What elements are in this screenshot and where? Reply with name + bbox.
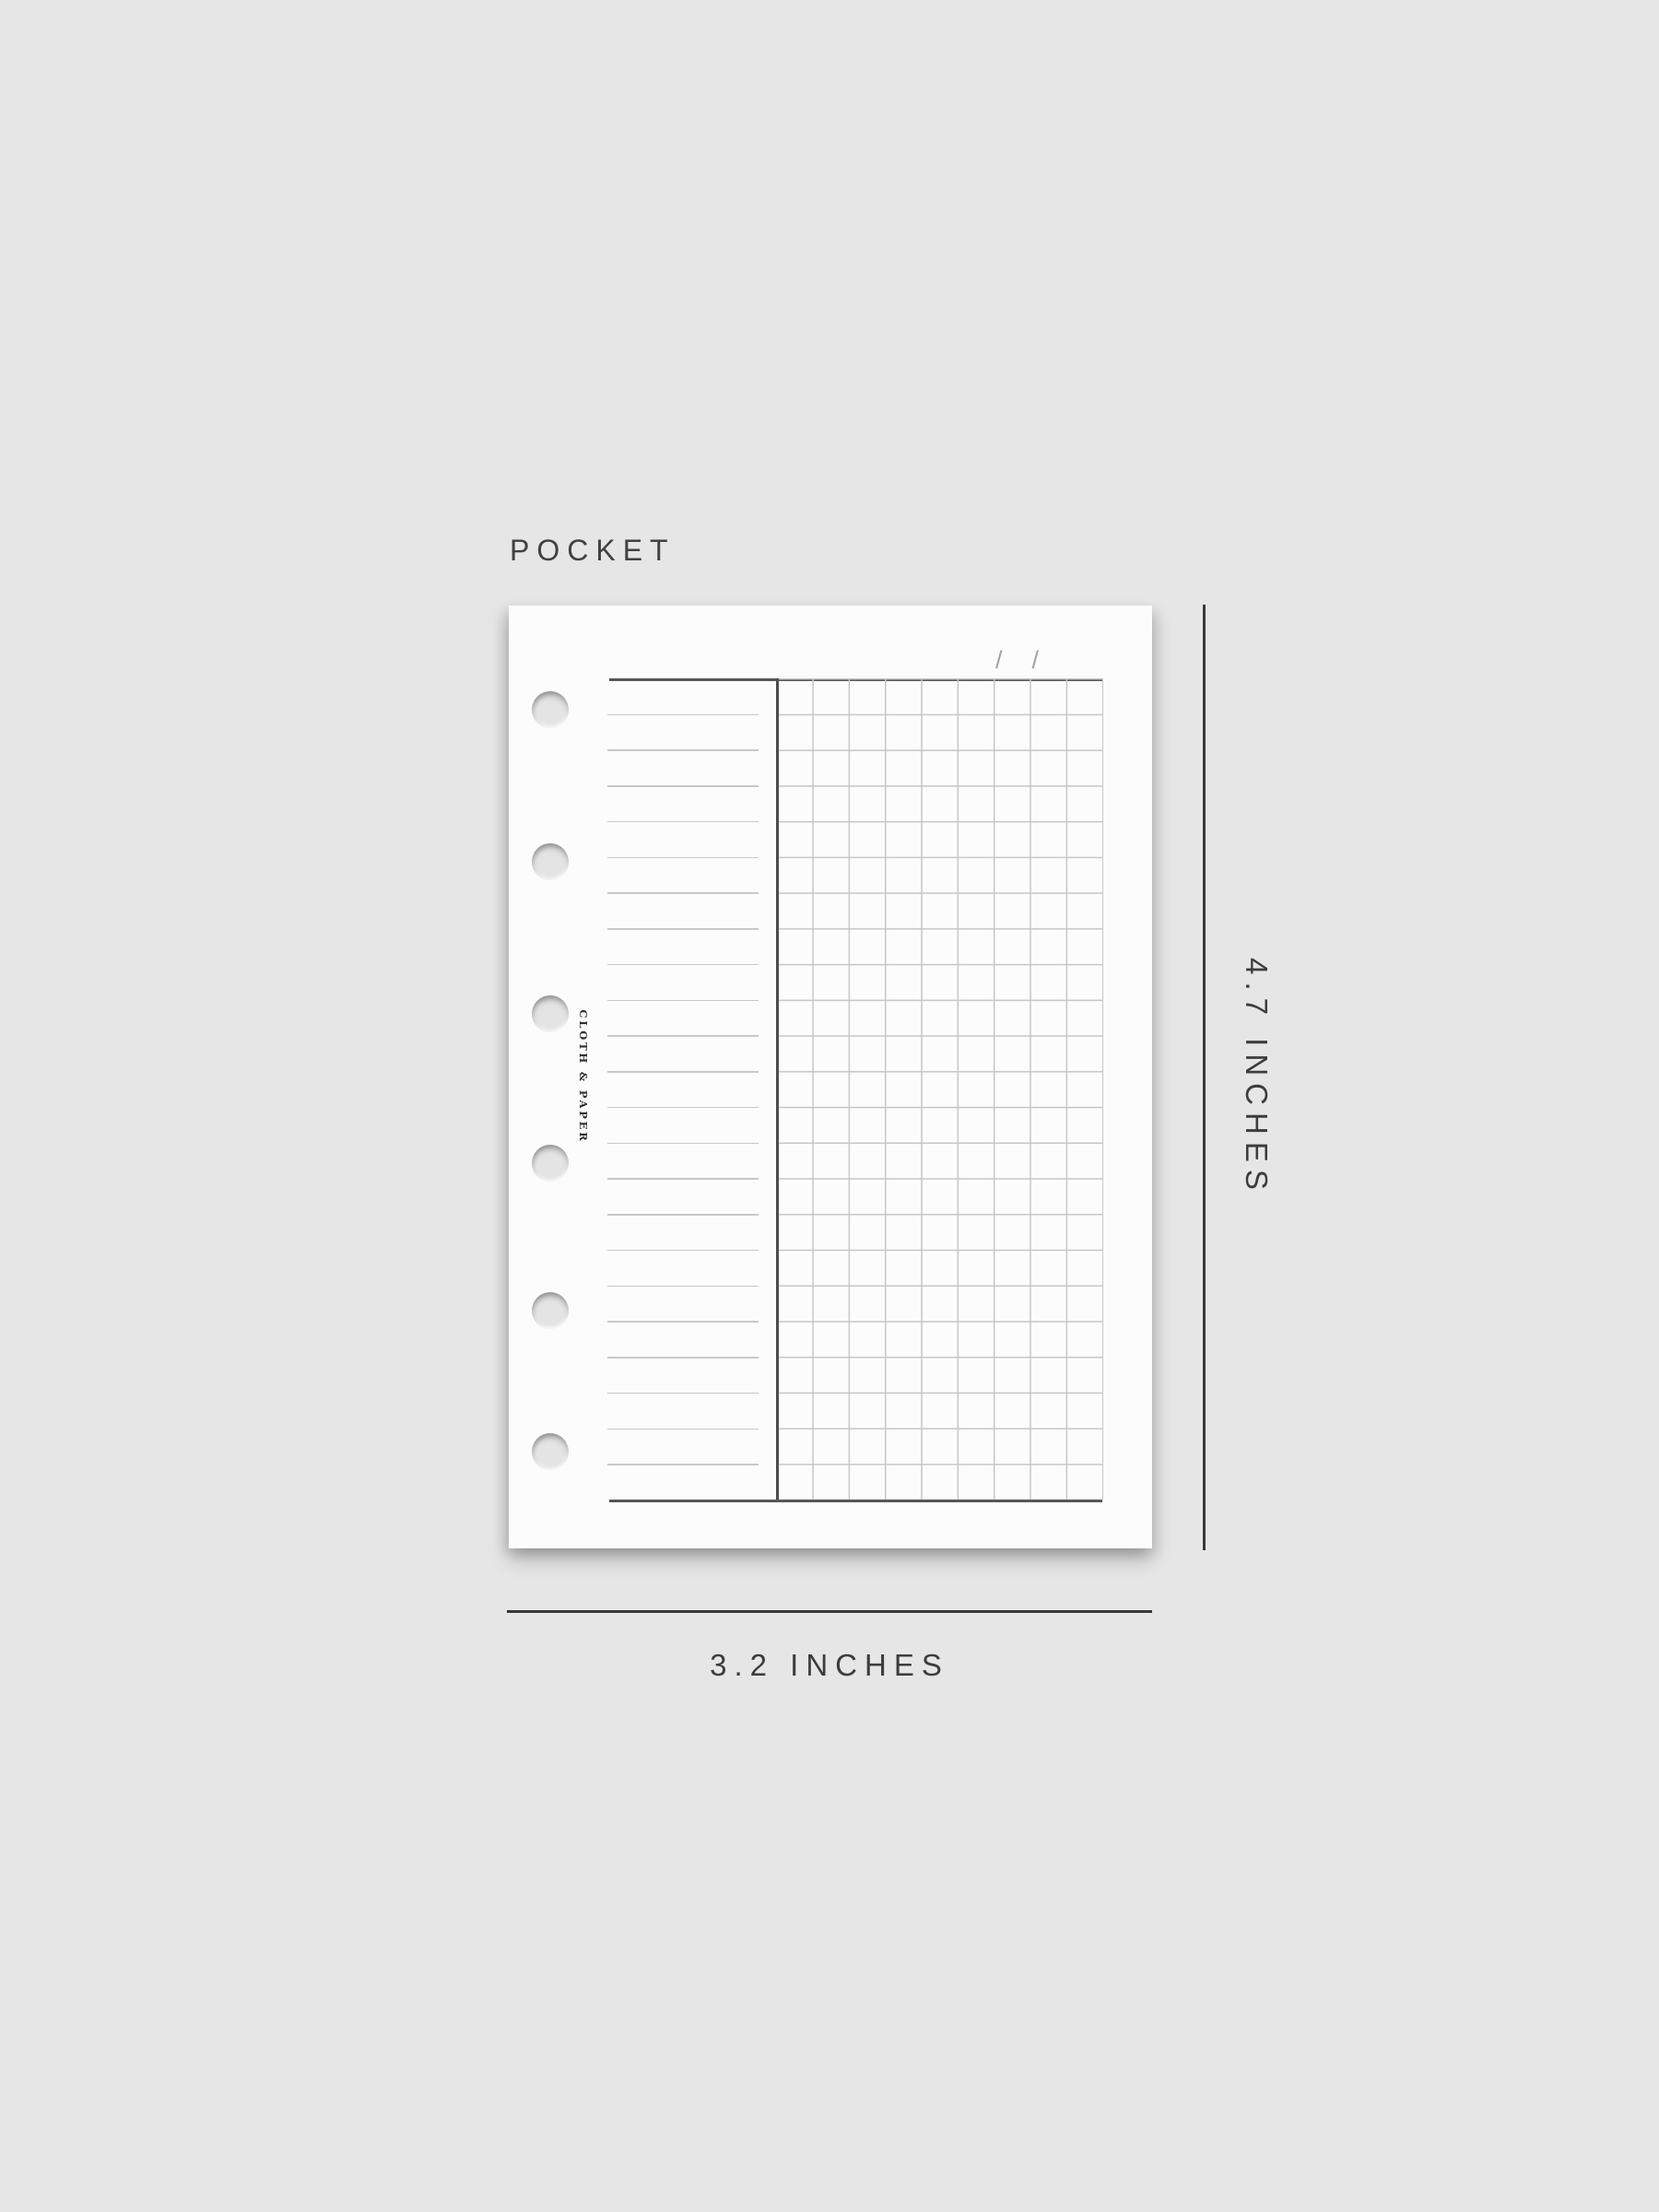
- ruled-line: [607, 749, 759, 751]
- punch-hole: [532, 691, 569, 728]
- ruled-line: [607, 964, 759, 966]
- ruled-line: [607, 1035, 759, 1037]
- bottom-rule: [609, 1500, 1102, 1502]
- ruled-line: [607, 1357, 759, 1359]
- width-dimension-line: [507, 1610, 1152, 1613]
- punch-hole: [532, 1145, 569, 1182]
- section-divider: [776, 678, 779, 1502]
- ruled-line: [607, 785, 759, 787]
- ruled-line: [607, 1286, 759, 1288]
- date-field-slashes: / /: [995, 646, 1039, 675]
- ruled-line: [607, 1071, 759, 1073]
- ruled-line: [607, 1143, 759, 1145]
- ruled-line: [607, 1178, 759, 1180]
- ruled-line: [607, 1429, 759, 1430]
- date-slash: /: [1032, 646, 1040, 675]
- ruled-line: [607, 1321, 759, 1323]
- ruled-line: [607, 1464, 759, 1465]
- ruled-line: [607, 1250, 759, 1252]
- ruled-line: [607, 1214, 759, 1216]
- size-label: POCKET: [510, 534, 676, 568]
- ruled-line: [607, 857, 759, 859]
- ruled-line: [607, 928, 759, 930]
- ruled-line: [607, 821, 759, 823]
- date-slash: /: [995, 646, 1003, 675]
- height-dimension-line: [1203, 605, 1206, 1550]
- punch-hole: [532, 1433, 569, 1470]
- ruled-line: [607, 1393, 759, 1394]
- ruled-line: [607, 1107, 759, 1109]
- ruled-line: [607, 892, 759, 894]
- brand-wordmark: CLOTH & PAPER: [577, 1009, 590, 1143]
- punch-hole: [532, 843, 569, 880]
- width-dimension-label: 3.2 INCHES: [710, 1648, 949, 1683]
- punch-hole: [532, 1292, 569, 1329]
- height-dimension-label: 4.7 INCHES: [1239, 958, 1274, 1197]
- ruled-line: [607, 714, 759, 716]
- planner-page: CLOTH & PAPER / /: [509, 606, 1152, 1548]
- grid-section: [776, 678, 1103, 1500]
- punch-hole: [532, 995, 569, 1032]
- ruled-line: [607, 1000, 759, 1002]
